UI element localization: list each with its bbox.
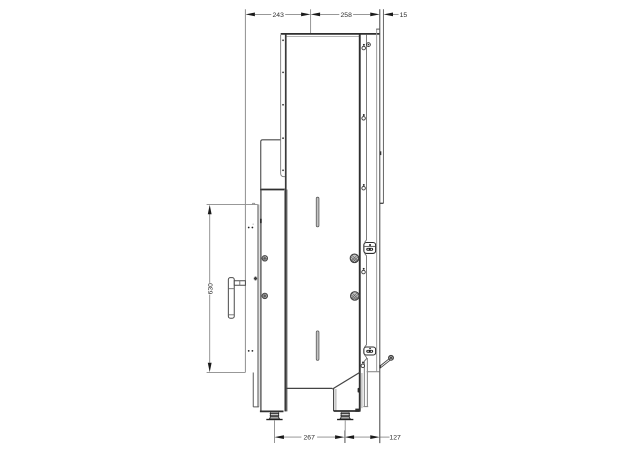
svg-text:243: 243: [273, 12, 285, 19]
svg-text:15: 15: [400, 12, 408, 19]
svg-text:258: 258: [341, 12, 353, 19]
svg-text:267: 267: [304, 435, 316, 442]
svg-text:630: 630: [207, 283, 214, 295]
svg-text:127: 127: [389, 435, 401, 442]
